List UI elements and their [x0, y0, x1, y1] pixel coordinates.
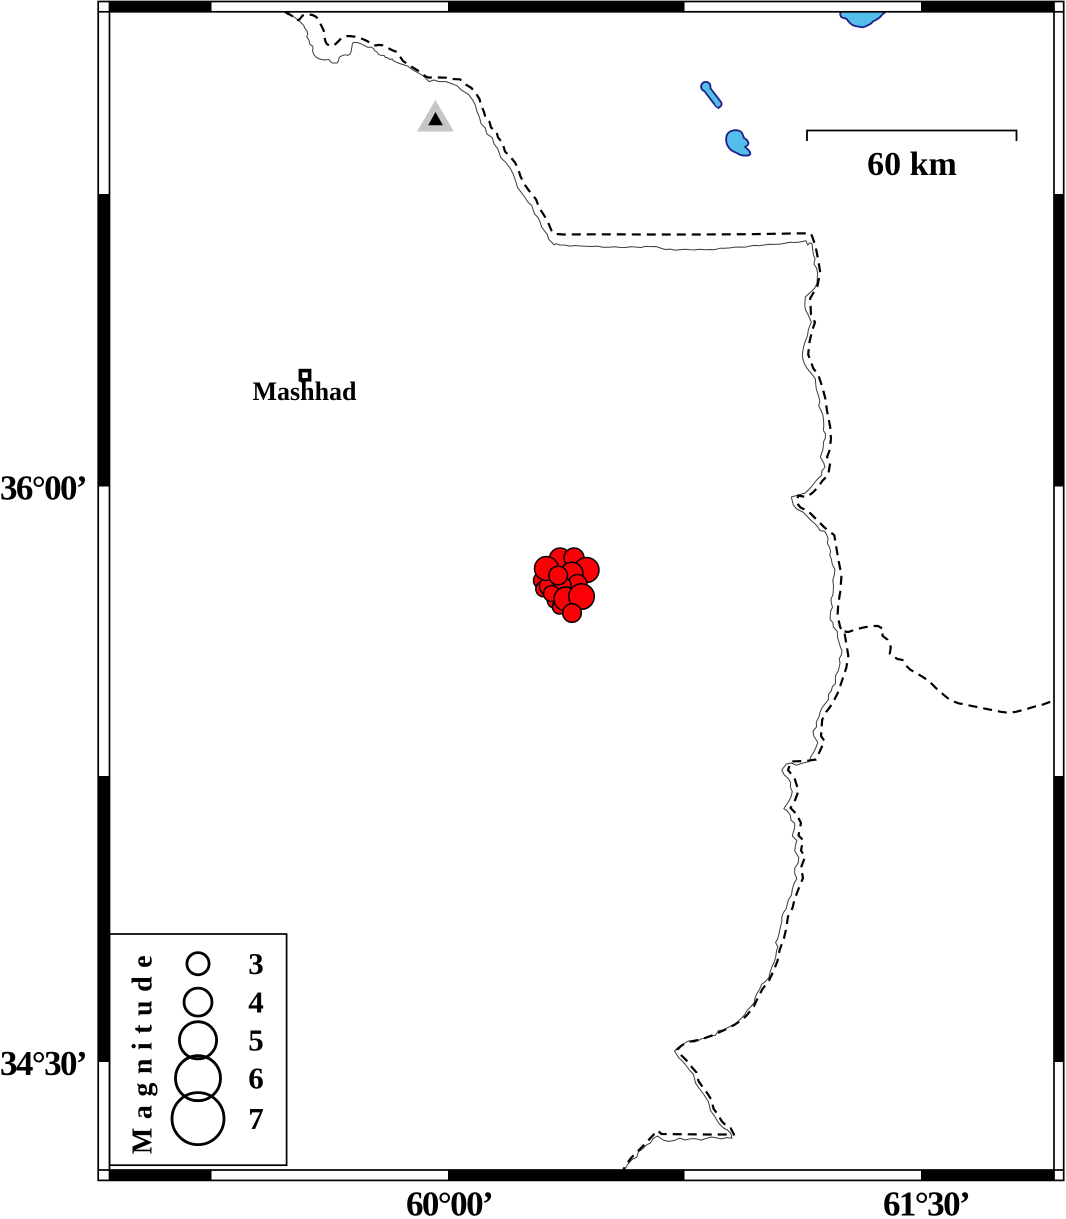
svg-text:4: 4: [248, 985, 264, 1020]
svg-text:Magnitude: Magnitude: [128, 947, 159, 1154]
svg-text:Mashhad: Mashhad: [252, 377, 357, 406]
svg-text:7: 7: [248, 1101, 264, 1136]
svg-text:6: 6: [248, 1061, 264, 1096]
svg-text:36°00’: 36°00’: [0, 469, 86, 508]
svg-text:60 km: 60 km: [867, 146, 957, 183]
svg-text:34°30’: 34°30’: [0, 1044, 86, 1083]
svg-text:61°30’: 61°30’: [883, 1185, 969, 1219]
svg-text:3: 3: [248, 946, 264, 981]
svg-text:60°00’: 60°00’: [406, 1185, 492, 1219]
svg-text:5: 5: [248, 1023, 264, 1058]
